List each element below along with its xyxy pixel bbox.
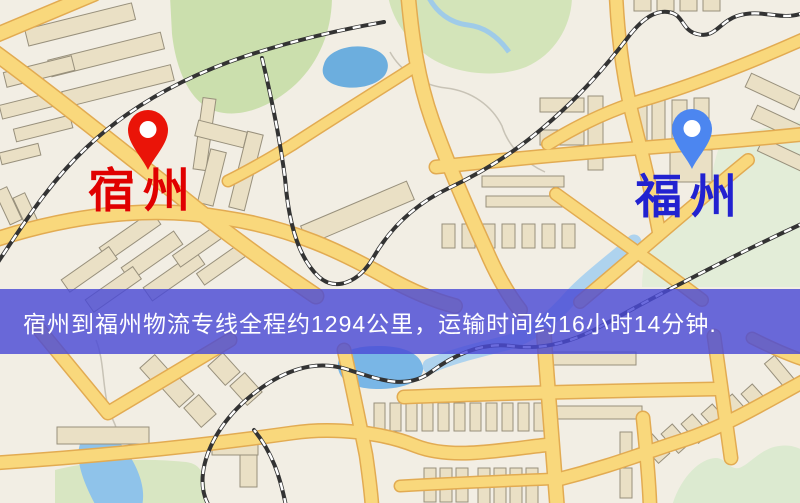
destination-pin-icon[interactable] [669,107,715,171]
destination-label: 福州 [605,173,775,220]
origin-pin-hole [140,121,157,138]
origin-pin-shape [128,110,168,170]
origin-pin-icon[interactable] [125,108,171,172]
destination-pin-hole [684,120,701,137]
map-canvas: 宿州 福州 宿州到福州物流专线全程约1294公里，运输时间约16小时14分钟. [0,0,800,503]
route-info-text: 宿州到福州物流专线全程约1294公里，运输时间约16小时14分钟. [0,305,717,339]
destination-pin-shape [672,109,712,169]
basemap [0,0,800,503]
route-info-banner: 宿州到福州物流专线全程约1294公里，运输时间约16小时14分钟. [0,289,800,354]
origin-label: 宿州 [58,167,228,214]
